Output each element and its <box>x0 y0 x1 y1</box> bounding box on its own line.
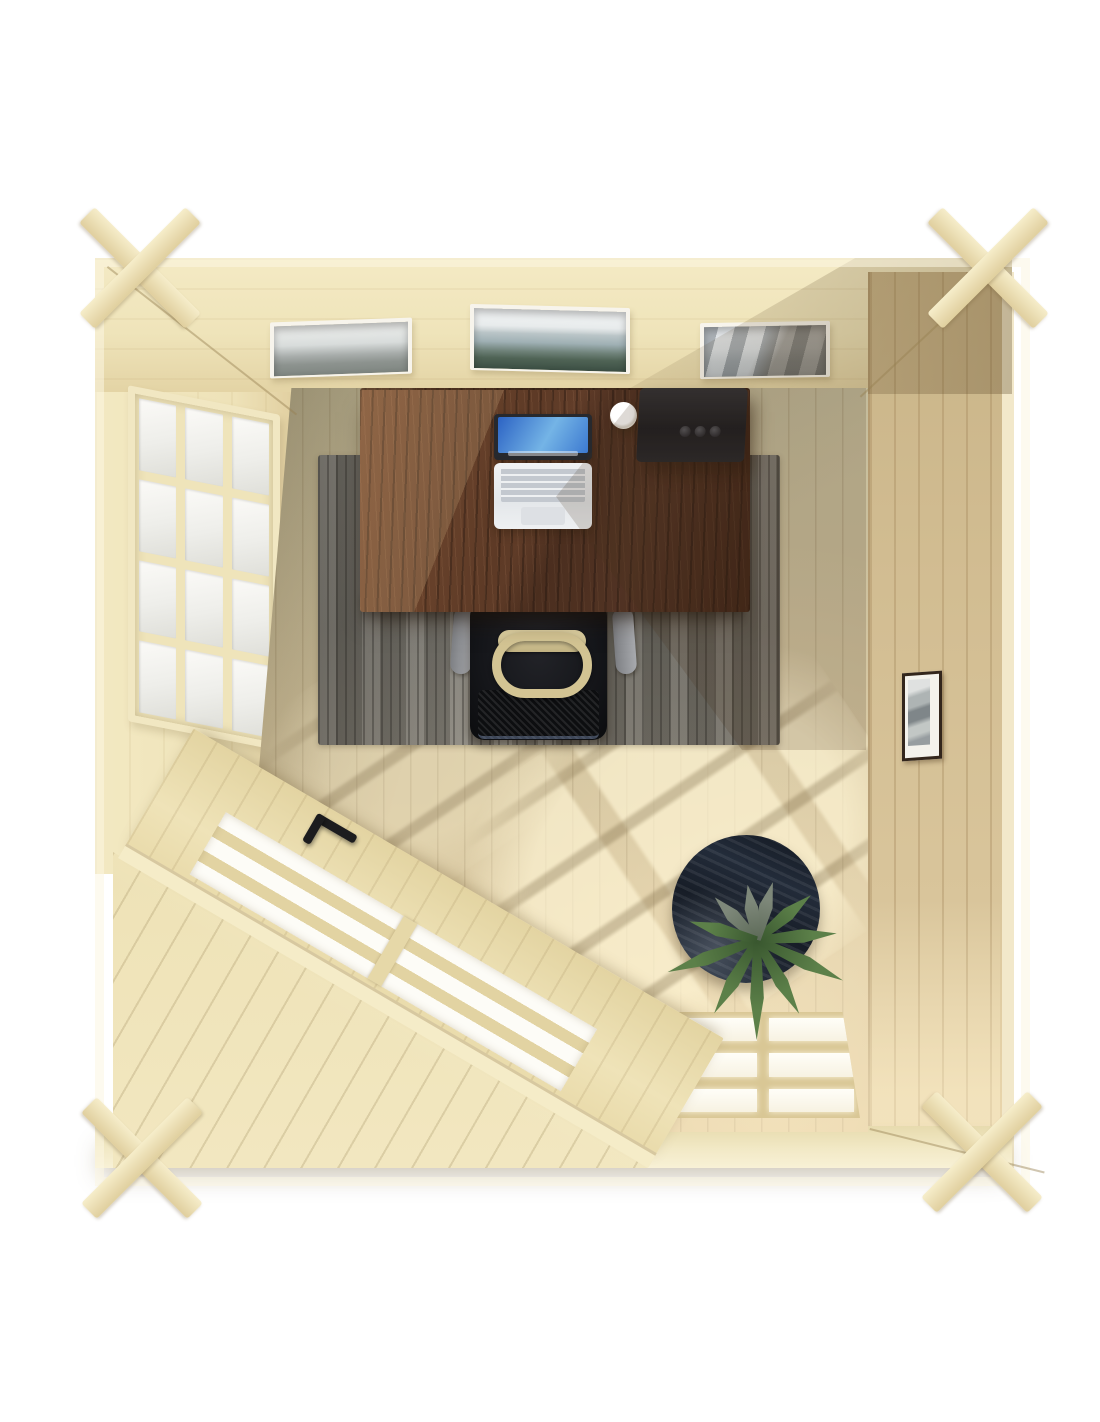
window-pane <box>232 497 269 576</box>
window-pane <box>185 488 222 567</box>
laptop-wallpaper <box>498 417 588 453</box>
window-pane <box>139 641 176 720</box>
window-pane <box>185 407 222 486</box>
window-pane <box>232 578 269 657</box>
window-pane <box>769 1089 854 1112</box>
left-wall-window <box>128 385 280 751</box>
picture-frame <box>902 671 942 762</box>
window-pane <box>769 1053 854 1076</box>
window-pane <box>139 398 176 477</box>
window-pane <box>232 416 269 495</box>
plant-group <box>672 835 842 1035</box>
laptop-dock <box>508 451 578 456</box>
framed-photo <box>908 678 930 746</box>
window-pane <box>139 560 176 639</box>
window-pane <box>139 479 176 558</box>
laptop-screen <box>494 414 592 460</box>
window-pane <box>185 569 222 648</box>
window-pane <box>185 650 222 729</box>
laptop-trackpad <box>521 507 565 525</box>
clerestory-window-coast <box>470 304 630 374</box>
clerestory-window-mountain <box>270 318 412 379</box>
backpack-strap <box>492 632 592 698</box>
cabin-top-view-render <box>0 0 1100 1422</box>
door-handle <box>302 813 326 845</box>
